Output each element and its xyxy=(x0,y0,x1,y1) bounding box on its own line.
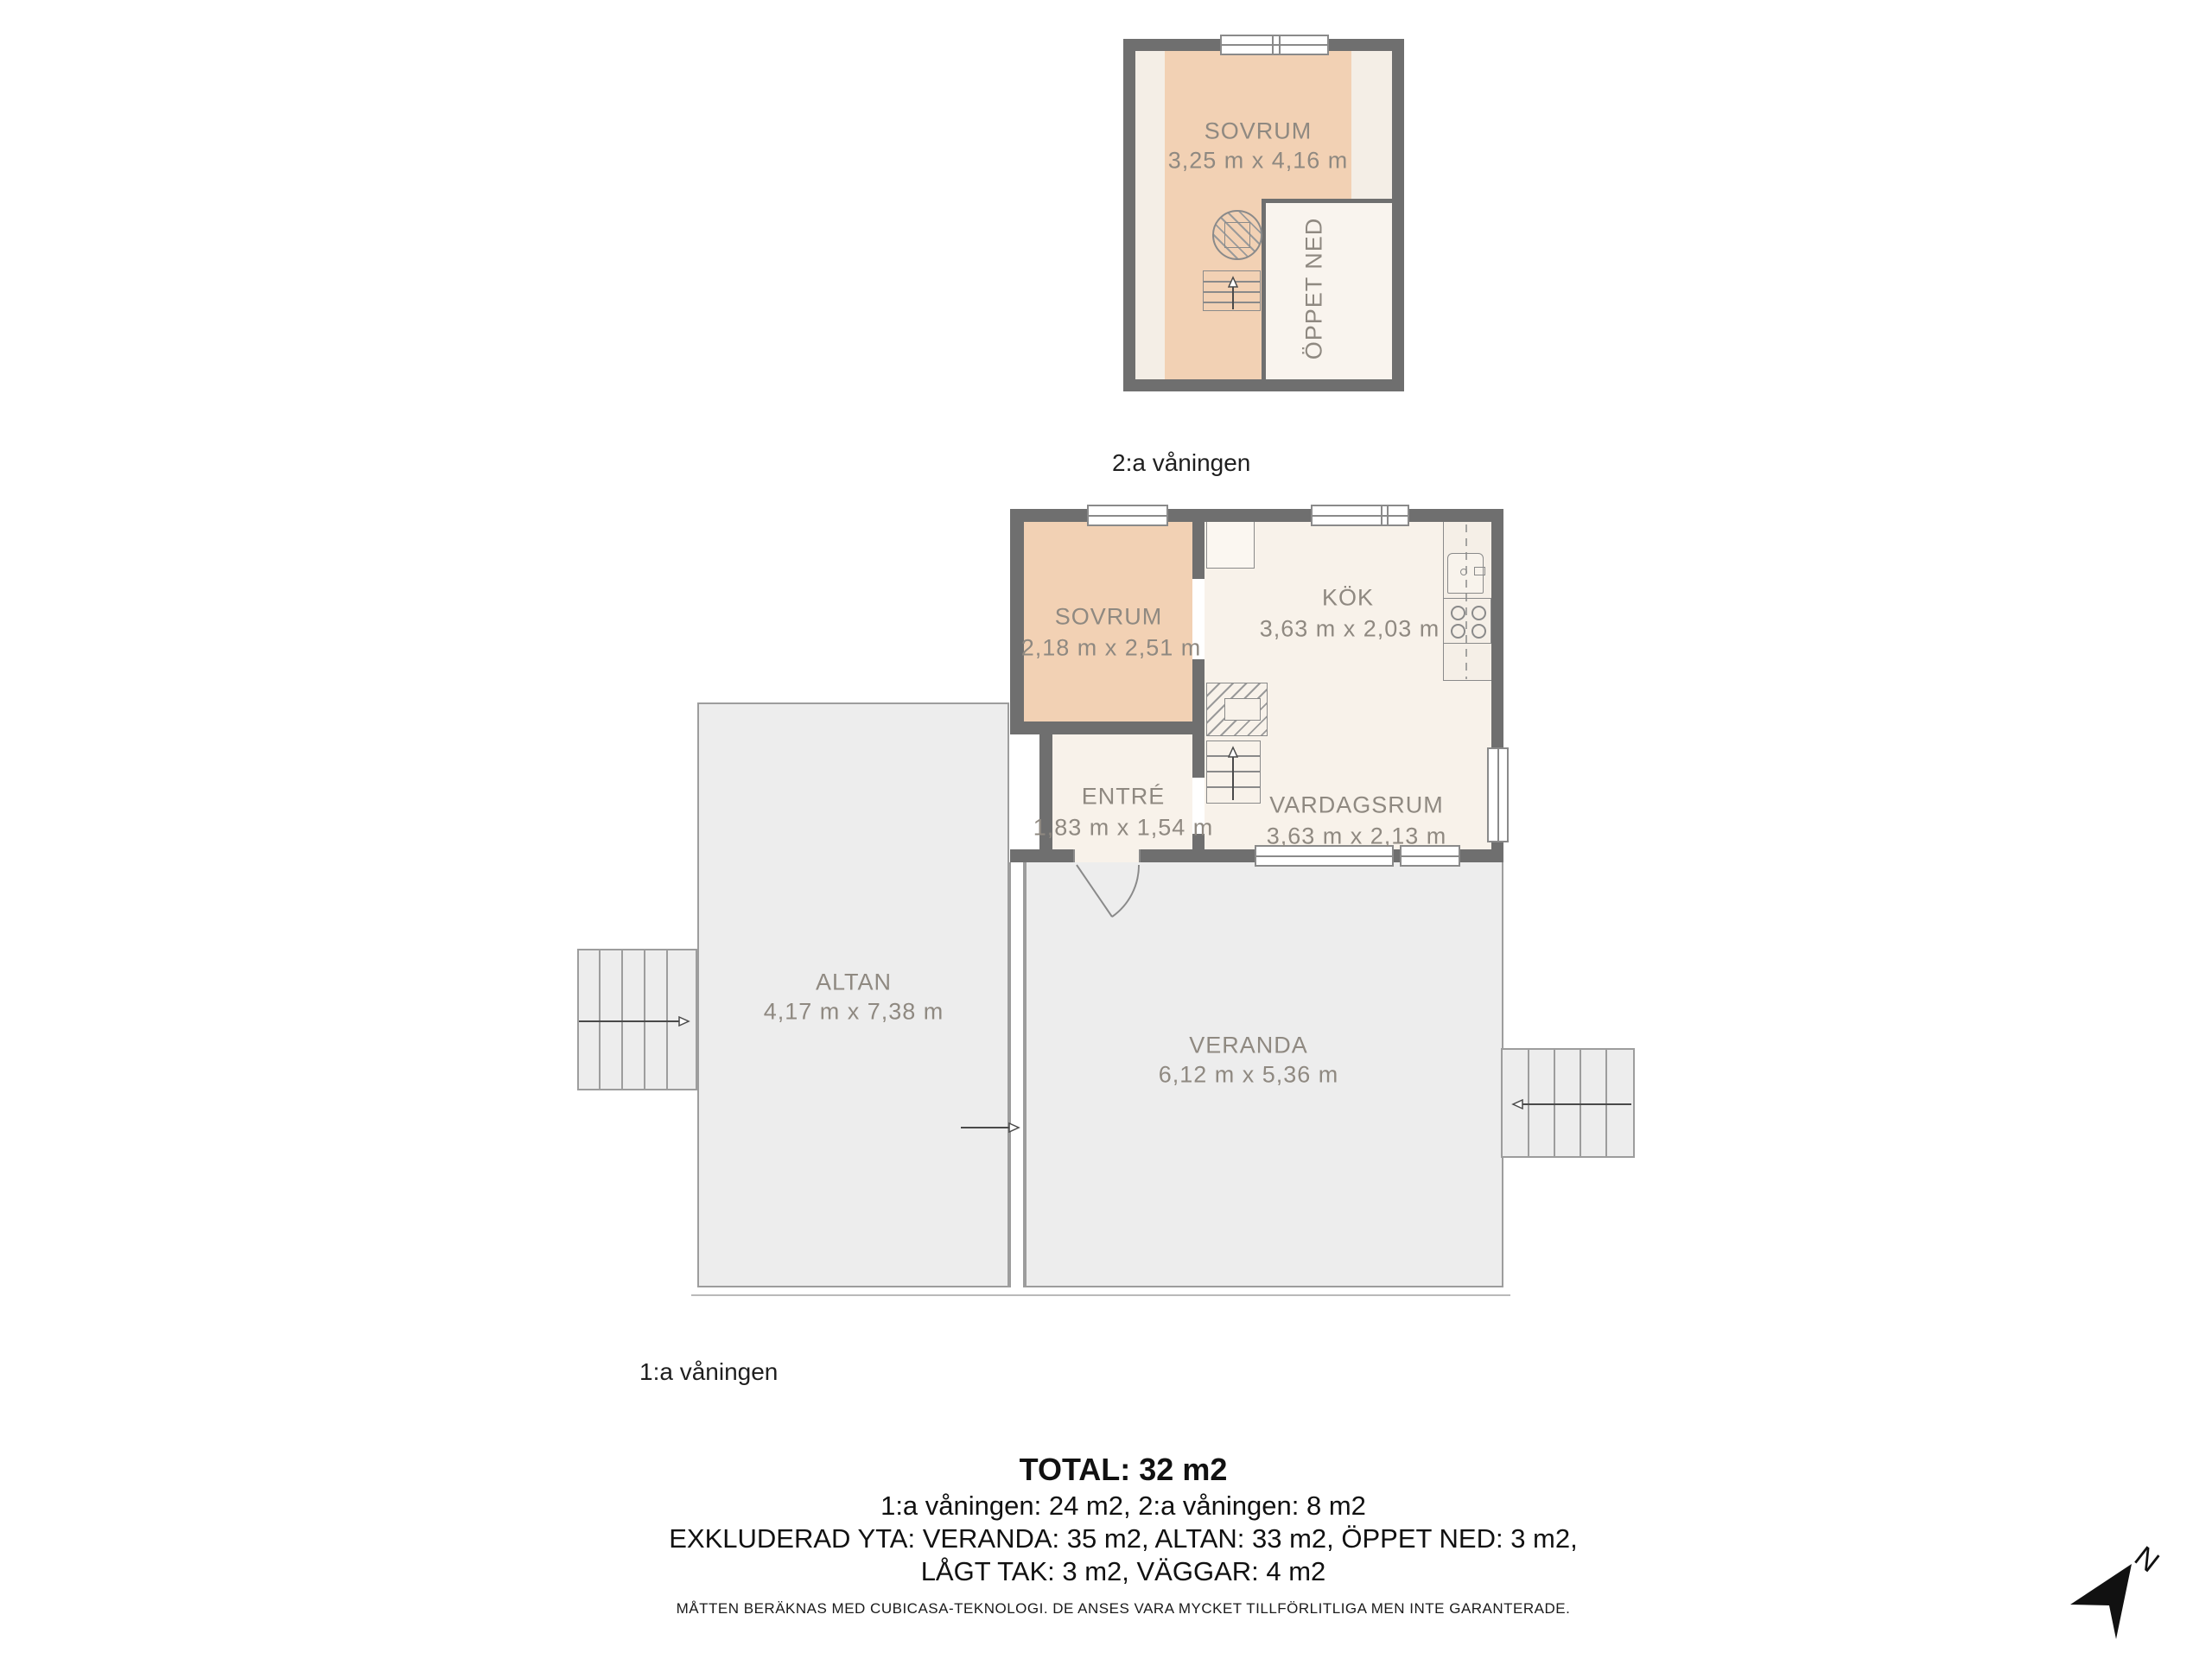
deck-outer-line xyxy=(691,1294,1510,1296)
stair-tread xyxy=(1207,771,1260,772)
burner-icon xyxy=(1451,624,1465,639)
altan-veranda-divider xyxy=(1009,862,1025,1287)
room-label-veranda: VERANDA xyxy=(1189,1033,1308,1059)
window-1f-top-sovrum xyxy=(1087,505,1168,526)
stair-tread xyxy=(1528,1050,1529,1156)
room-label-kok: KÖK xyxy=(1322,585,1374,612)
stair-tread xyxy=(621,950,623,1089)
disclaimer-text: MÅTTEN BERÄKNAS MED CUBICASA-TEKNOLOGI. … xyxy=(518,1600,1728,1618)
closet-icon xyxy=(1206,522,1255,569)
stair-tread xyxy=(1204,281,1260,283)
stair-tread xyxy=(666,950,668,1089)
room-dims-kok: 3,63 m x 2,03 m xyxy=(1260,616,1440,643)
burner-icon xyxy=(1471,624,1486,639)
window-divider xyxy=(1381,506,1382,524)
window-1f-right xyxy=(1487,747,1509,842)
burner-icon xyxy=(1451,606,1465,620)
stair-tread xyxy=(1204,291,1260,293)
stair-tread xyxy=(1605,1050,1607,1156)
room-label-entre: ENTRÉ xyxy=(1082,784,1166,810)
room-dims-veranda: 6,12 m x 5,36 m xyxy=(1159,1062,1339,1089)
summary-total: TOTAL: 32 m2 xyxy=(518,1450,1728,1490)
window-divider xyxy=(1272,36,1274,54)
second-floor-low-ceiling-strip-left xyxy=(1135,51,1165,379)
stair-tread xyxy=(599,950,601,1089)
floorplan-page: ÖPPET NED SOVRUM 3,25 m x 4,16 m 2:a vån… xyxy=(0,0,2212,1659)
window-glass-line xyxy=(1256,855,1392,857)
stair-1f xyxy=(1206,741,1261,804)
stair-landing-platform xyxy=(1224,698,1261,721)
room-dims-entre: 1,83 m x 1,54 m xyxy=(1033,815,1214,842)
spiral-stair-platform xyxy=(1224,222,1250,248)
stair-2f xyxy=(1203,270,1261,311)
wall xyxy=(1192,509,1205,579)
burner-icon xyxy=(1471,606,1486,620)
stair-tread xyxy=(1204,302,1260,303)
area-summary: TOTAL: 32 m2 1:a våningen: 24 m2, 2:a vå… xyxy=(518,1450,1728,1588)
stair-tread xyxy=(1207,755,1260,757)
room-label-sovrum-2f: SOVRUM xyxy=(1205,118,1313,145)
north-compass-icon: N xyxy=(2070,1540,2165,1639)
window-glass-line xyxy=(1313,515,1408,517)
wall xyxy=(1392,39,1404,391)
wall xyxy=(1192,659,1205,734)
window-2f-top xyxy=(1220,35,1329,55)
soap-tray-icon xyxy=(1474,567,1485,575)
floor-label-first: 1:a våningen xyxy=(639,1358,778,1386)
room-label-altan: ALTAN xyxy=(816,969,892,996)
window-divider xyxy=(1279,36,1281,54)
room-dims-sovrum-2f: 3,25 m x 4,16 m xyxy=(1168,148,1349,175)
room-label-sovrum-1f: SOVRUM xyxy=(1055,604,1163,631)
summary-excluded-2: LÅGT TAK: 3 m2, VÄGGAR: 4 m2 xyxy=(518,1555,1728,1588)
stair-exterior-altan xyxy=(577,949,697,1090)
door-entre xyxy=(1073,849,1141,862)
room-label-oppet-ned: ÖPPET NED xyxy=(1301,218,1328,360)
summary-excluded-1: EXKLUDERAD YTA: VERANDA: 35 m2, ALTAN: 3… xyxy=(518,1522,1728,1555)
floor-label-second: 2:a våningen xyxy=(1112,449,1250,477)
stair-tread xyxy=(1580,1050,1581,1156)
room-dims-vardagsrum: 3,63 m x 2,13 m xyxy=(1267,823,1447,850)
wall xyxy=(1039,721,1052,862)
wall xyxy=(1010,509,1024,734)
stair-exterior-veranda xyxy=(1501,1048,1635,1158)
wall xyxy=(1192,734,1205,778)
wall xyxy=(1123,39,1135,391)
north-label: N xyxy=(2128,1540,2165,1579)
stair-tread xyxy=(1554,1050,1555,1156)
faucet-icon xyxy=(1460,569,1467,575)
room-dims-altan: 4,17 m x 7,38 m xyxy=(764,999,944,1026)
window-divider xyxy=(1387,506,1389,524)
window-glass-line xyxy=(1089,515,1166,517)
window-1f-top-kok xyxy=(1311,505,1409,526)
room-label-vardagsrum: VARDAGSRUM xyxy=(1269,792,1444,819)
stair-tread xyxy=(1207,786,1260,788)
summary-floors: 1:a våningen: 24 m2, 2:a våningen: 8 m2 xyxy=(518,1490,1728,1522)
window-glass-line xyxy=(1497,749,1499,841)
stove-icon xyxy=(1443,598,1491,644)
window-glass-line xyxy=(1402,855,1459,857)
room-dims-sovrum-1f: 2,18 m x 2,51 m xyxy=(1021,635,1202,662)
stair-tread xyxy=(644,950,645,1089)
wall xyxy=(1010,509,1503,522)
window-glass-line xyxy=(1222,44,1327,46)
wall xyxy=(1123,379,1404,391)
